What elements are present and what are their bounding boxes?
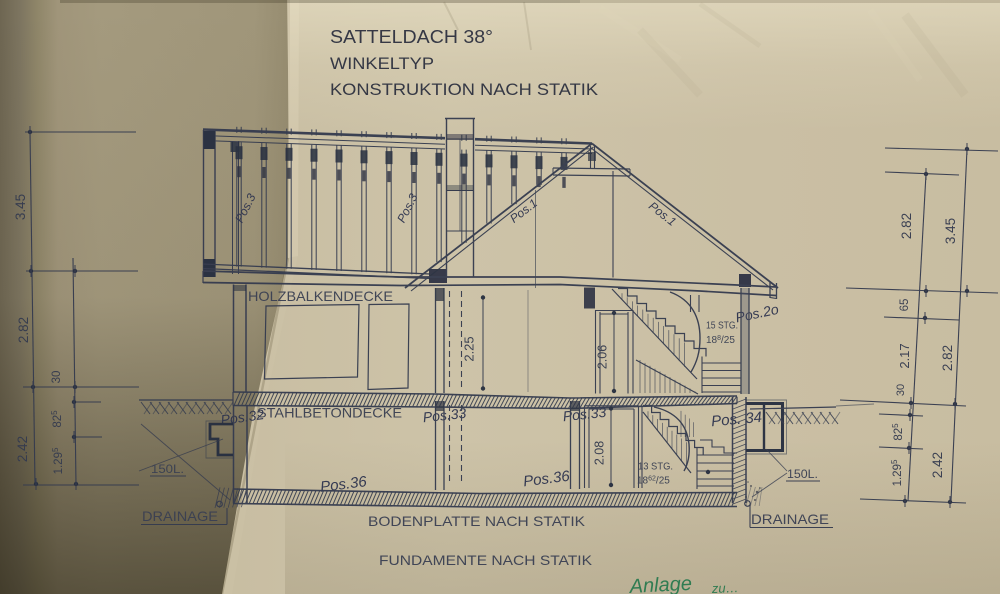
svg-text:15 STG.: 15 STG. <box>706 321 738 332</box>
svg-text:2.82: 2.82 <box>899 213 914 239</box>
svg-text:188/25: 188/25 <box>706 335 735 346</box>
svg-text:FUNDAMENTE NACH STATIK: FUNDAMENTE NACH STATIK <box>379 552 593 568</box>
svg-text:30: 30 <box>895 384 907 396</box>
svg-text:KONSTRUKTION NACH STATIK: KONSTRUKTION NACH STATIK <box>330 80 599 99</box>
svg-text:2.06: 2.06 <box>596 345 610 369</box>
svg-text:zu…: zu… <box>711 580 739 594</box>
svg-text:2.42: 2.42 <box>930 452 945 478</box>
svg-text:13 STG.: 13 STG. <box>638 462 673 473</box>
svg-text:150L.: 150L. <box>787 467 818 481</box>
svg-text:2.17: 2.17 <box>897 343 912 368</box>
svg-text:SATTELDACH 38°: SATTELDACH 38° <box>330 27 493 47</box>
svg-text:DRAINAGE: DRAINAGE <box>751 511 829 527</box>
svg-text:HOLZBALKENDECKE: HOLZBALKENDECKE <box>248 288 393 304</box>
svg-text:30: 30 <box>51 371 63 384</box>
svg-text:65: 65 <box>899 299 911 312</box>
svg-text:DRAINAGE: DRAINAGE <box>142 508 218 524</box>
svg-text:2.82: 2.82 <box>16 317 31 343</box>
svg-text:STAHLBETONDECKE: STAHLBETONDECKE <box>257 405 402 421</box>
svg-text:2.82: 2.82 <box>940 345 955 371</box>
svg-text:Anlage: Anlage <box>628 573 692 594</box>
svg-text:3.45: 3.45 <box>943 218 958 244</box>
svg-text:2.08: 2.08 <box>593 441 607 465</box>
svg-text:3.45: 3.45 <box>13 194 28 220</box>
svg-text:WINKELTYP: WINKELTYP <box>330 54 434 73</box>
svg-text:150L.: 150L. <box>151 462 184 476</box>
svg-text:2.25: 2.25 <box>462 336 477 361</box>
svg-text:2.42: 2.42 <box>15 436 30 462</box>
svg-text:BODENPLATTE NACH STATIK: BODENPLATTE NACH STATIK <box>368 513 586 529</box>
